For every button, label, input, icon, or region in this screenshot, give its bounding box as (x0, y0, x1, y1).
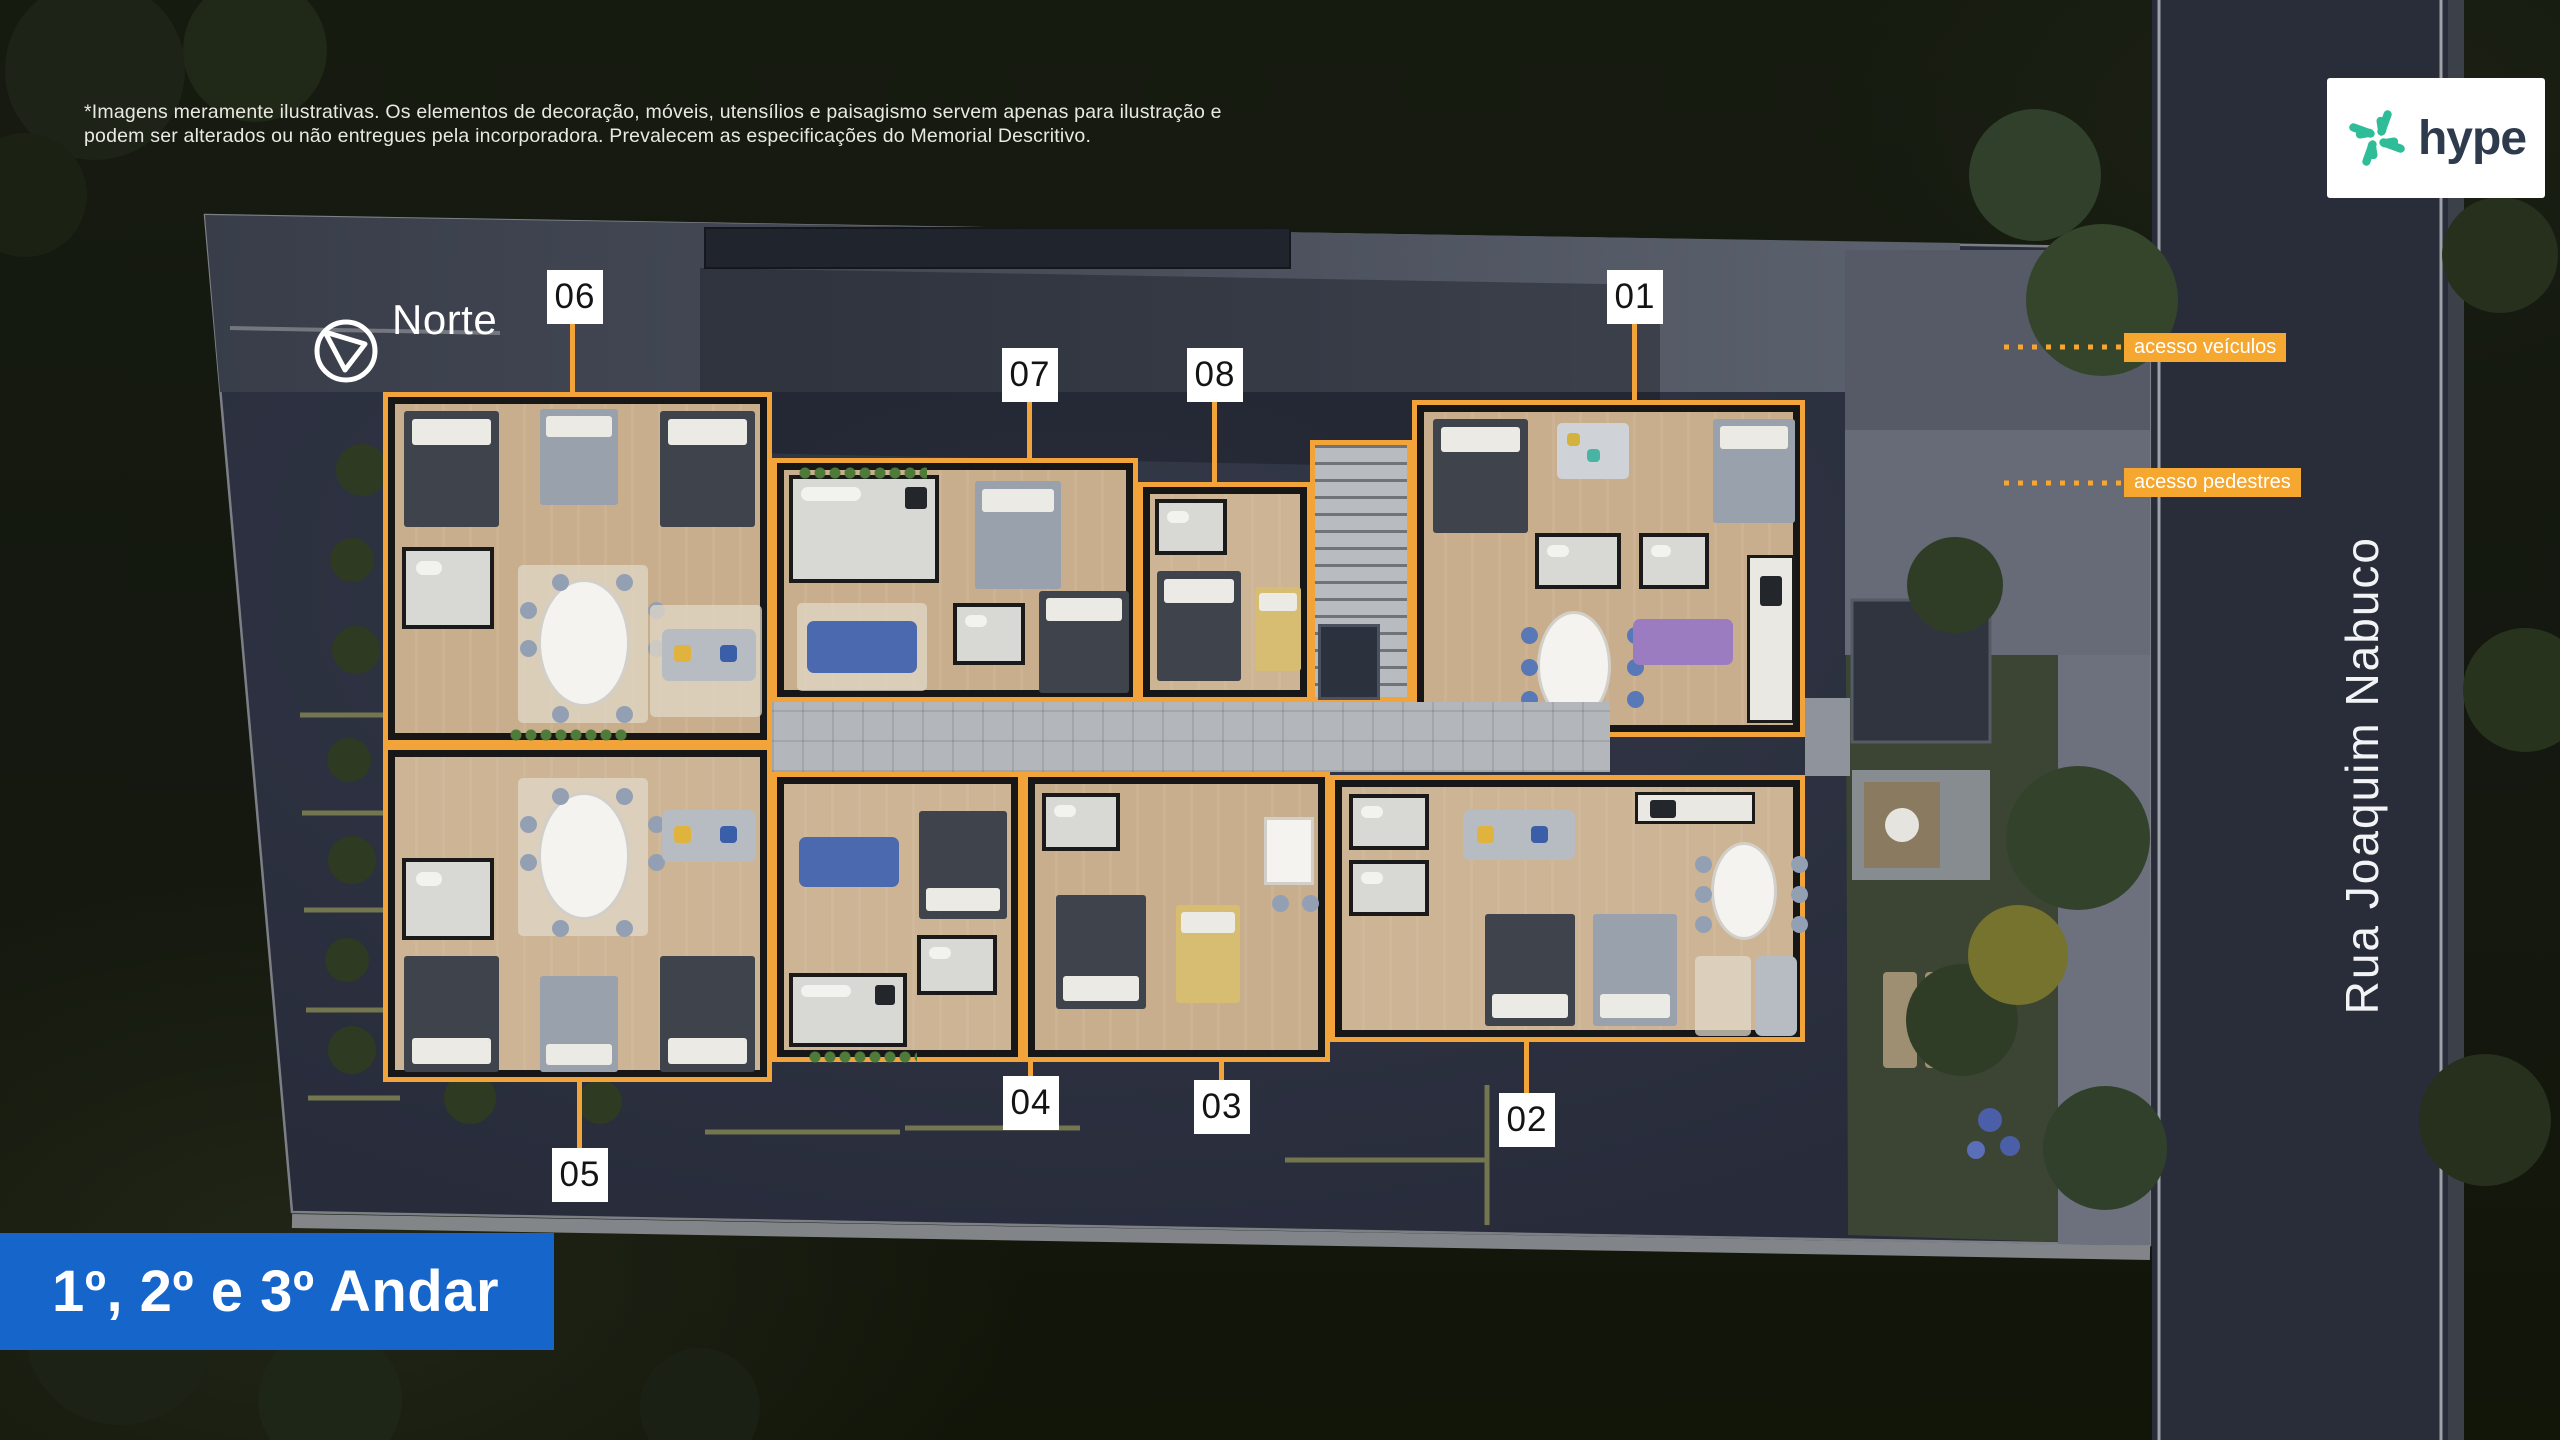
chair (1521, 627, 1538, 644)
unit-tag-03[interactable]: 03 (1194, 1080, 1250, 1134)
furniture-bed (1433, 419, 1528, 533)
dining-table (538, 792, 630, 920)
pillow (720, 826, 737, 843)
floor-banner: 1º, 2º e 3º Andar (0, 1233, 554, 1350)
furniture-bed (404, 411, 499, 527)
furniture-bed (1593, 914, 1677, 1026)
furniture-bed (1713, 419, 1795, 523)
kitchen-counter (1635, 792, 1755, 824)
chair (1695, 856, 1712, 873)
bathroom (1042, 793, 1120, 851)
bathroom (1639, 533, 1709, 589)
sofa (807, 621, 917, 673)
unit-05-leader (577, 1082, 582, 1148)
bathroom (953, 603, 1025, 665)
planter (807, 1049, 917, 1064)
disclaimer-text: *Imagens meramente ilustrativas. Os elem… (84, 100, 1244, 149)
sofa (1755, 956, 1797, 1036)
brand-logo-card: hype (2327, 78, 2545, 198)
unit-02-floorplan (1330, 775, 1805, 1042)
bathroom (1349, 860, 1429, 916)
chair (520, 816, 537, 833)
unit-tag-06[interactable]: 06 (547, 270, 603, 324)
rug (1695, 956, 1751, 1036)
unit-tag-08[interactable]: 08 (1187, 348, 1243, 402)
street-road (2152, 0, 2464, 1440)
kitchen (789, 973, 907, 1047)
side-table (1264, 817, 1314, 885)
sofa (799, 837, 899, 887)
unit-08-floorplan (1138, 482, 1312, 702)
unit-tag-07[interactable]: 07 (1002, 348, 1058, 402)
unit-02-leader (1524, 1042, 1529, 1095)
unit-tag-05[interactable]: 05 (552, 1148, 608, 1202)
furniture-bed (1056, 895, 1146, 1009)
bathroom (1349, 794, 1429, 850)
elevator (1318, 624, 1380, 700)
furniture-bed (975, 481, 1061, 589)
planter (797, 465, 927, 480)
furniture-bed (1039, 591, 1129, 693)
unit-03-floorplan (1023, 772, 1330, 1062)
hype-logo-icon (2346, 107, 2408, 169)
disclaimer-line2: podem ser alterados ou não entregues pel… (84, 124, 1244, 148)
unit-01-floorplan (1412, 400, 1805, 737)
bathroom (402, 547, 494, 629)
unit-05-floorplan (383, 745, 772, 1082)
planter (508, 727, 628, 742)
unit-06-leader (570, 323, 575, 393)
floor-banner-title: 1º, 2º e 3º Andar (0, 1258, 499, 1325)
corridor (772, 702, 1610, 772)
pillow (1567, 433, 1580, 446)
pedestrian-access-label: acesso pedestres (2124, 468, 2301, 497)
chair (520, 602, 537, 619)
bathroom (1155, 499, 1227, 555)
unit-tag-02[interactable]: 02 (1499, 1093, 1555, 1147)
chair (1272, 895, 1289, 912)
furniture-bed (1485, 914, 1575, 1026)
bathroom (917, 935, 997, 995)
building-footprint (383, 392, 1810, 1082)
armchair (1255, 587, 1301, 671)
kitchen-counter (1747, 555, 1795, 723)
unit-tag-04[interactable]: 04 (1003, 1076, 1059, 1130)
pillow (674, 645, 691, 662)
unit-07-leader (1027, 401, 1032, 461)
pillow (1477, 826, 1494, 843)
furniture-bed (1157, 571, 1241, 681)
disclaimer-line1: *Imagens meramente ilustrativas. Os elem… (84, 100, 1244, 124)
bathroom (402, 858, 494, 940)
unit-01-leader (1632, 323, 1637, 401)
pillow (1587, 449, 1600, 462)
kitchen (789, 475, 939, 583)
unit-04-floorplan (772, 772, 1023, 1062)
canopy (705, 228, 1290, 268)
floorplan-scene: 06 07 08 01 05 04 03 02 *Imagens meramen… (0, 0, 2560, 1440)
pillow (674, 826, 691, 843)
outdoor-table (1885, 808, 1919, 842)
furniture-bed (540, 976, 618, 1072)
street-name: Rua Joaquim Nabuco (2316, 555, 2408, 995)
dining-table (538, 579, 630, 707)
street-name-text: Rua Joaquim Nabuco (2335, 536, 2389, 1014)
entry-path (1805, 698, 1850, 776)
unit-08-leader (1212, 401, 1217, 483)
furniture-bed (540, 409, 618, 505)
north-compass-icon (313, 318, 379, 384)
furniture-bed (404, 956, 499, 1072)
unit-03-leader (1219, 1062, 1224, 1082)
unit-07-floorplan (772, 458, 1138, 702)
vehicle-access-label: acesso veículos (2124, 333, 2286, 362)
dining-table (1711, 842, 1777, 940)
hype-logo-text: hype (2418, 111, 2526, 166)
furniture-bed (660, 411, 755, 527)
furniture-bed (660, 956, 755, 1072)
pillow (1531, 826, 1548, 843)
pillow (720, 645, 737, 662)
north-label: Norte (392, 296, 497, 344)
unit-06-floorplan (383, 392, 772, 745)
sofa (1633, 619, 1733, 665)
furniture-bed (919, 811, 1007, 919)
armchair (1176, 905, 1240, 1003)
bathroom (1535, 533, 1621, 589)
unit-tag-01[interactable]: 01 (1607, 270, 1663, 324)
